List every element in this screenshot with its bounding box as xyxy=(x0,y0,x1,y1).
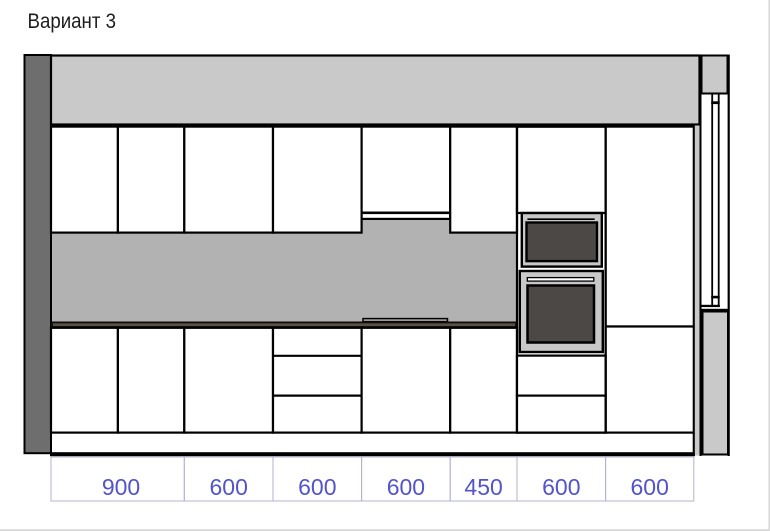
svg-text:Вариант 3: Вариант 3 xyxy=(28,9,117,33)
svg-text:600: 600 xyxy=(210,474,248,500)
svg-text:600: 600 xyxy=(542,474,580,500)
svg-text:600: 600 xyxy=(387,474,425,500)
svg-text:600: 600 xyxy=(631,474,669,500)
svg-text:450: 450 xyxy=(464,474,502,500)
svg-text:900: 900 xyxy=(102,474,140,500)
svg-text:600: 600 xyxy=(298,474,336,500)
